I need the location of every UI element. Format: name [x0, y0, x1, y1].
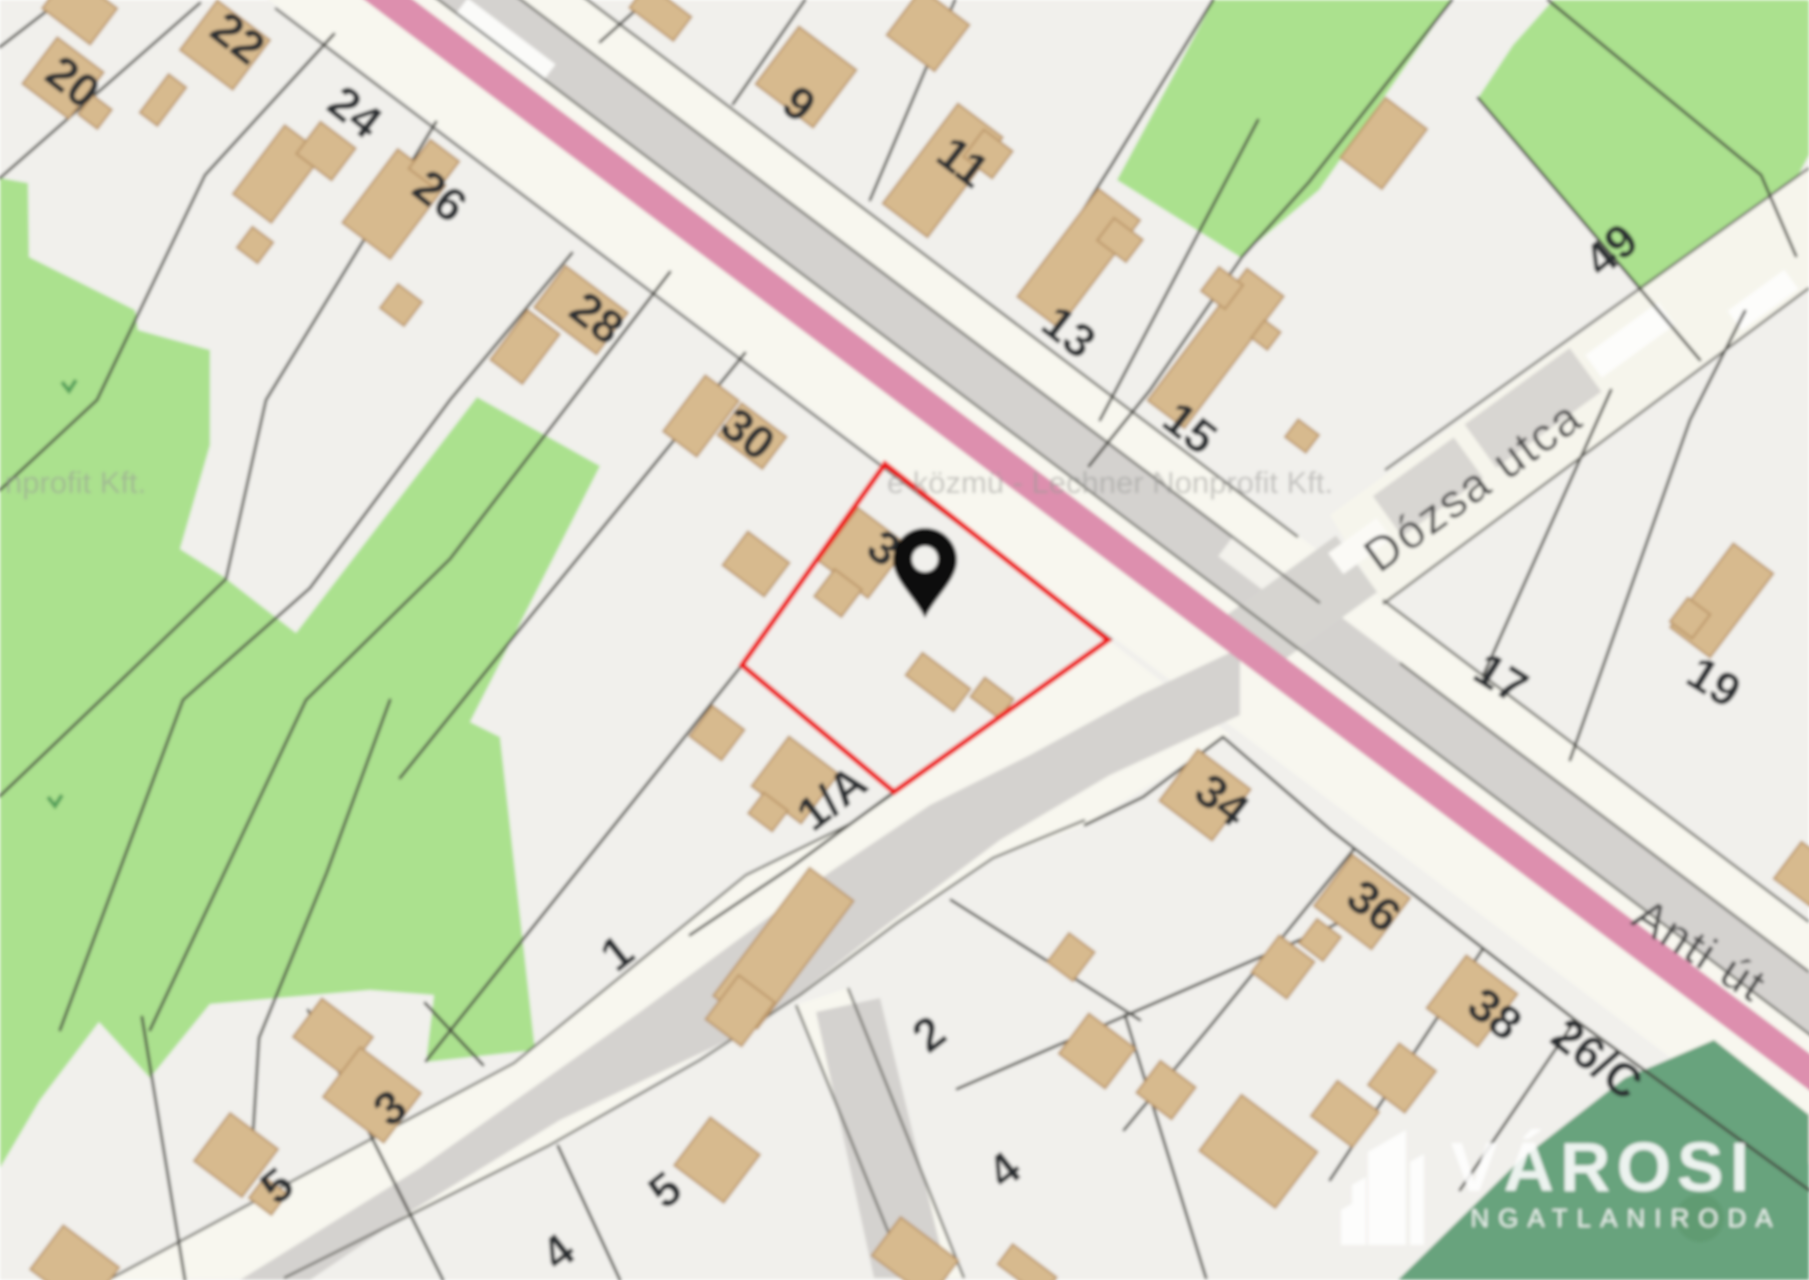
svg-text:nprofit Kft.: nprofit Kft. — [5, 465, 146, 500]
svg-text:e közmü - Lechner Nonprofit Kf: e közmü - Lechner Nonprofit Kft. — [887, 465, 1333, 500]
svg-text:VÁROSI: VÁROSI — [1451, 1128, 1755, 1206]
svg-text:NGATLANIRODA: NGATLANIRODA — [1470, 1203, 1781, 1233]
